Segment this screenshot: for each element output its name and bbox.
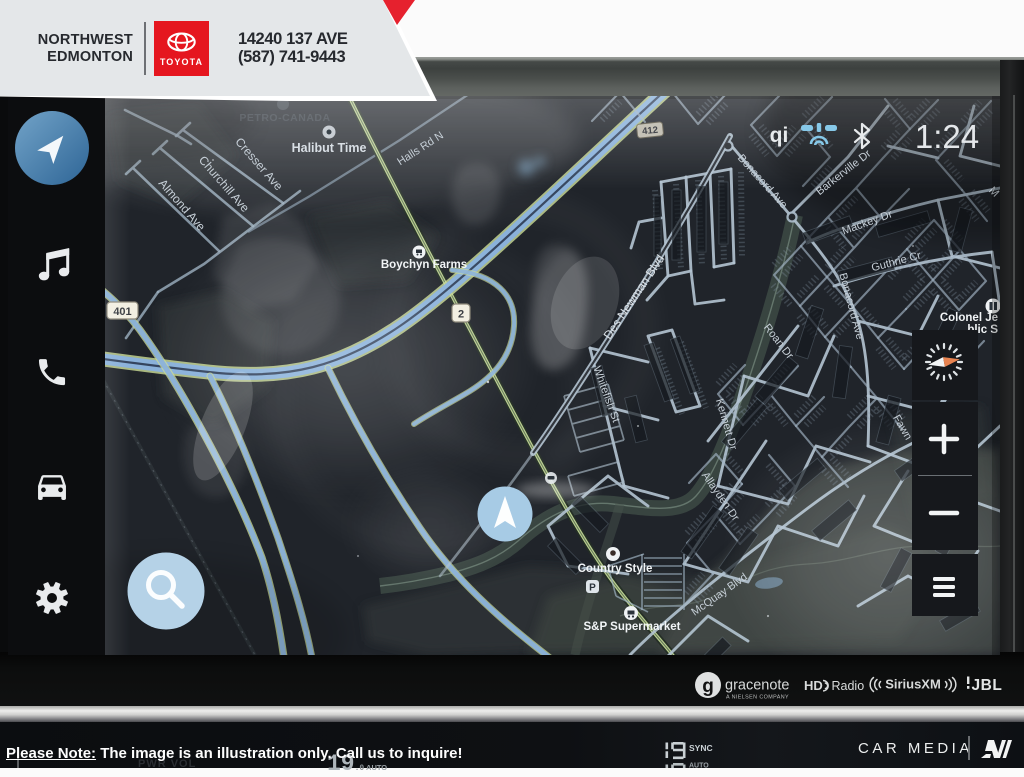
svg-text:2: 2 — [458, 309, 464, 321]
svg-text:Country Style: Country Style — [578, 563, 653, 575]
svg-text:AUTO: AUTO — [689, 763, 709, 769]
svg-text:SYNC: SYNC — [689, 743, 713, 753]
svg-text:Halibut Time: Halibut Time — [292, 141, 367, 155]
svg-text:SiriusXM: SiriusXM — [885, 677, 941, 692]
svg-text:gracenote: gracenote — [725, 678, 790, 694]
svg-text:JBL: JBL — [972, 677, 1003, 694]
svg-text:qi: qi — [770, 124, 789, 147]
svg-text:A NIELSEN COMPANY: A NIELSEN COMPANY — [726, 695, 789, 701]
svg-text:TOYOTA: TOYOTA — [160, 57, 203, 67]
svg-text:Boychyn Farms: Boychyn Farms — [381, 259, 467, 271]
svg-text:Colonel Je: Colonel Je — [940, 312, 998, 324]
svg-text:P: P — [589, 583, 596, 594]
svg-text:412: 412 — [642, 125, 659, 138]
svg-text:S&P Supermarket: S&P Supermarket — [584, 621, 681, 633]
svg-text:g: g — [702, 676, 714, 697]
svg-text:HD: HD — [804, 678, 823, 693]
svg-text:1:24: 1:24 — [915, 118, 979, 155]
svg-text:PETRO-CANADA: PETRO-CANADA — [239, 112, 330, 124]
svg-text:Radio: Radio — [832, 679, 865, 693]
